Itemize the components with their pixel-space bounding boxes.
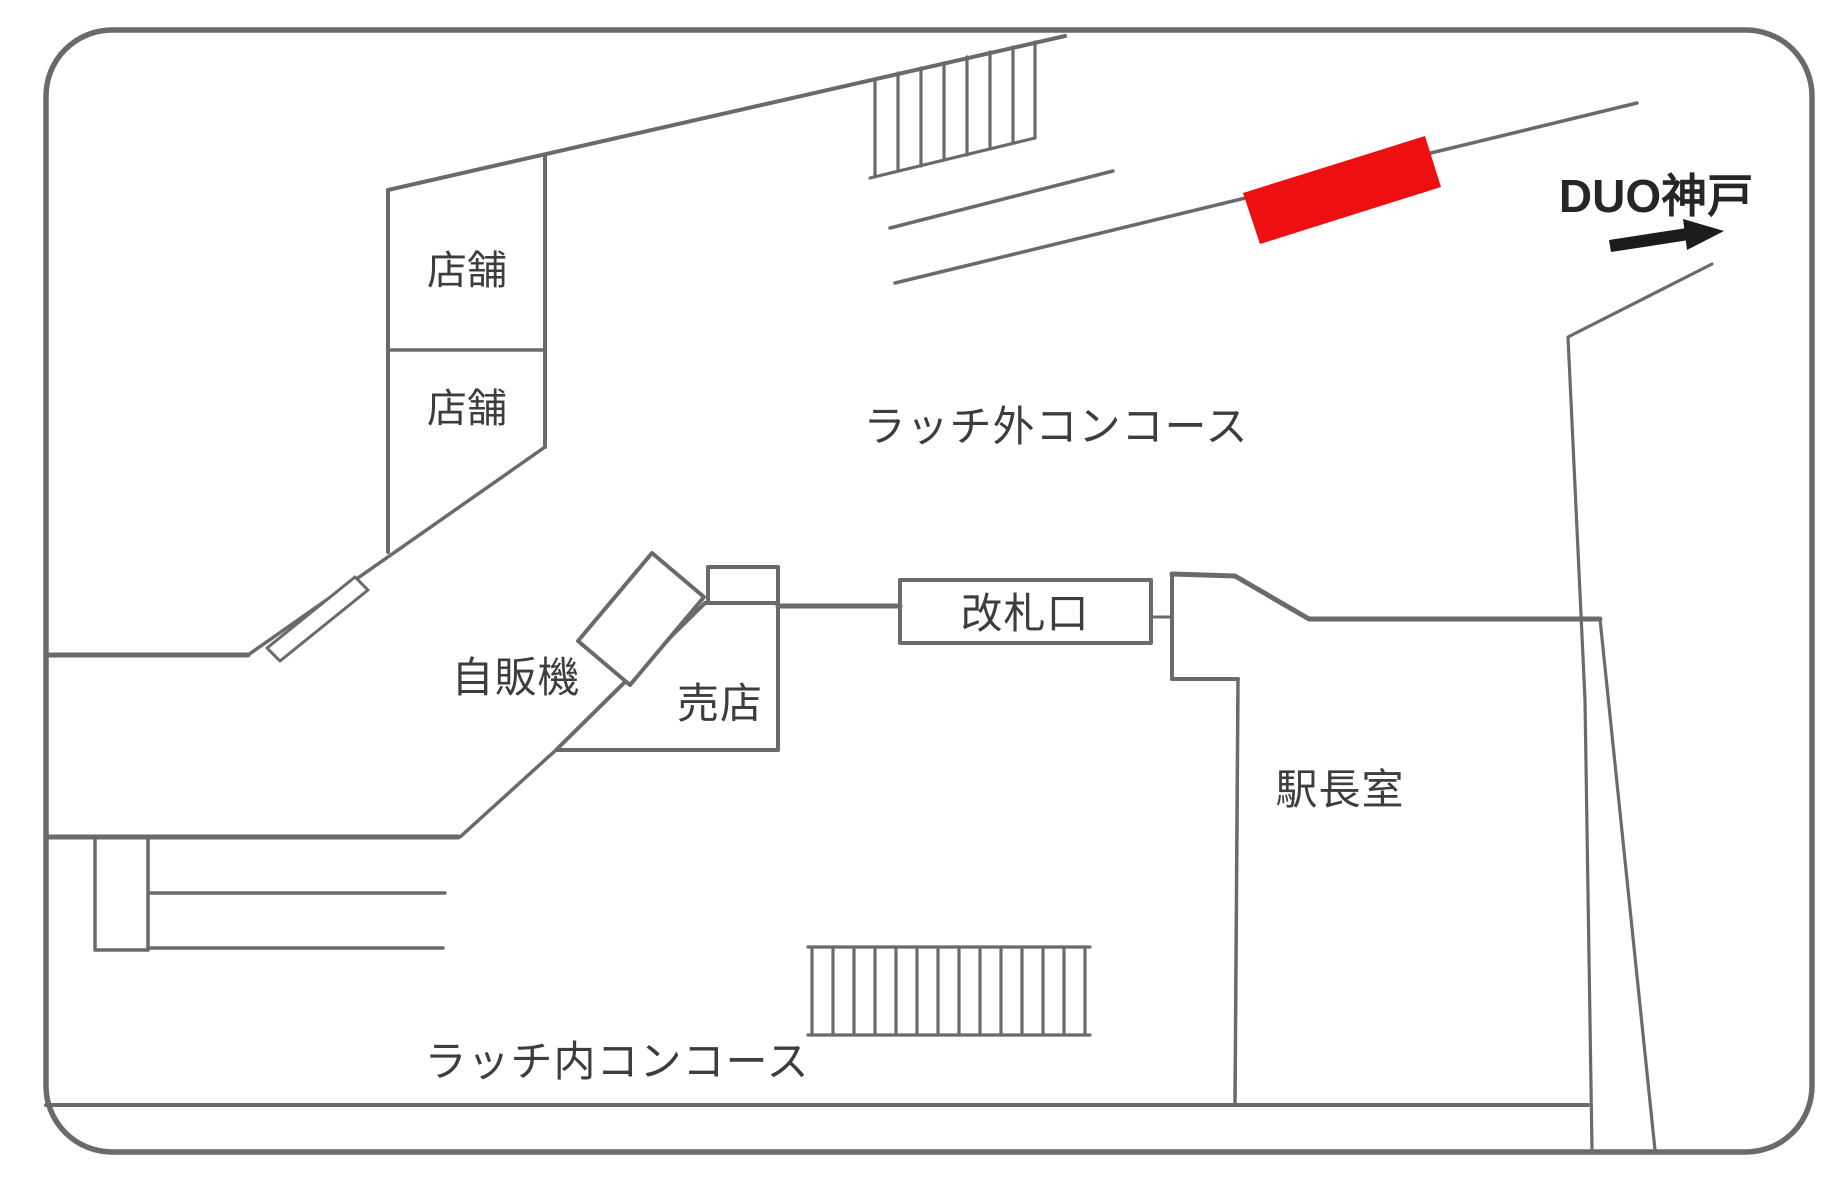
label-outside-concourse: ラッチ外コンコース <box>864 403 1249 450</box>
label-vending-machine: 自販機 <box>451 654 580 701</box>
shop-lower-diagonal-wall <box>248 447 545 655</box>
station-floor-plan: 店舗 店舗 ラッチ外コンコース DUO神戸 自販機 売店 改札口 駅長室 ラッチ… <box>0 0 1847 1180</box>
passage-line-short <box>890 171 1113 228</box>
lower-stairs <box>808 947 1090 1035</box>
upper-diagonal-wall <box>388 36 1065 190</box>
label-duo-kobe: DUO神戸 <box>1559 170 1753 222</box>
kiosk-small-box <box>708 567 778 603</box>
duo-direction-arrow-icon <box>1609 219 1724 252</box>
outer-border <box>46 30 1812 1152</box>
floor-plan-canvas: 店舗 店舗 ラッチ外コンコース DUO神戸 自販機 売店 改札口 駅長室 ラッチ… <box>0 0 1847 1180</box>
upper-stairs-rail <box>870 138 1035 178</box>
label-inside-concourse: ラッチ内コンコース <box>425 1038 810 1085</box>
ad-location-marker <box>1243 136 1441 244</box>
duo-corridor-right-wall <box>1600 619 1655 1150</box>
label-shop-lower: 店舗 <box>427 387 507 431</box>
label-shop-upper: 店舗 <box>427 249 507 293</box>
office-top-wall <box>1172 574 1600 619</box>
label-kiosk: 売店 <box>677 680 763 727</box>
kiosk-diagonal-wall <box>460 750 556 837</box>
label-ticket-gate: 改札口 <box>960 590 1089 637</box>
label-station-master-office: 駅長室 <box>1275 766 1404 813</box>
office-left-wall <box>1235 679 1238 1105</box>
platform-stair-box <box>95 837 148 950</box>
doorway-symbol <box>267 577 368 661</box>
wall-lines-group <box>46 30 1812 1152</box>
vending-machine-block <box>578 553 704 685</box>
